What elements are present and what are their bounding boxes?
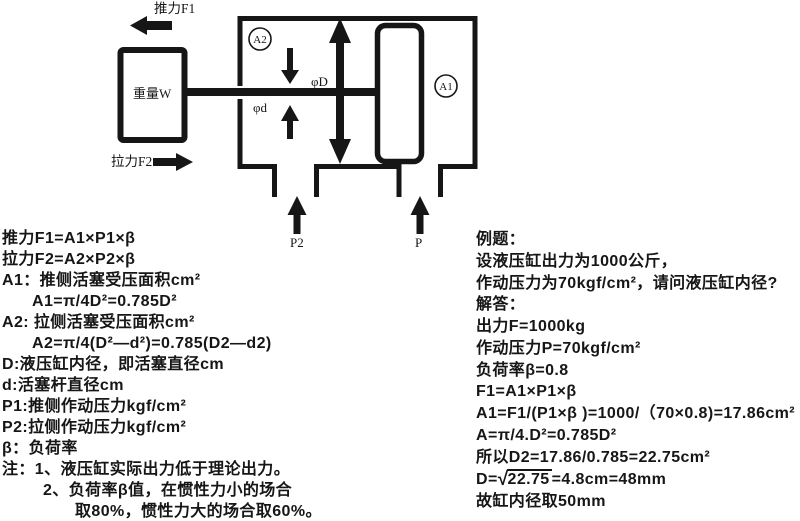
example-radical-line: D=√22.75=4.8cm=48mm <box>476 468 795 491</box>
port-p-label: P <box>415 235 422 250</box>
example-line: 出力F=1000kg <box>476 316 795 338</box>
note-line-1: 注：1、液压缸实际出力低于理论出力。 <box>2 459 322 480</box>
note-line-2: 2、负荷率β值，在惯性力小的场合 <box>2 480 322 501</box>
piston <box>378 26 422 162</box>
port-p-arrow-head <box>411 196 430 215</box>
area-a2-badge: A2 <box>249 28 271 50</box>
area-a2-label: A2 <box>253 34 266 46</box>
example-line: A1=F1/(P1×β )=1000/（70×0.8)=17.86cm² <box>476 403 795 425</box>
formula-line-a1-eq: A1=π/4D²=0.785D² <box>2 291 322 312</box>
square-root-icon: √ <box>498 469 509 491</box>
formula-line-d-rod-def: d:活塞杆直径cm <box>2 375 322 396</box>
formula-line-d-def: D:液压缸内径，即活塞直径cm <box>2 354 322 375</box>
hydraulic-cylinder-page: A2 A1 推力F1 重量W 拉力F2 φD φd P2 P 推力F1=A1×P… <box>0 0 800 521</box>
example-line: 负荷率β=0.8 <box>476 360 795 382</box>
example-line: 设液压缸出力为1000公斤， <box>476 251 795 273</box>
example-title: 例题： <box>476 229 795 251</box>
formula-line-p2-def: P2:拉侧作动压力kgf/cm² <box>2 417 322 438</box>
example-panel: 例题： 设液压缸出力为1000公斤， 作动压力为70kgf/cm²，请问液压缸内… <box>476 229 795 513</box>
formula-line-a2-def: A2: 拉侧活塞受压面积cm² <box>2 312 322 333</box>
bore-diameter-label: φD <box>311 74 328 89</box>
note-line-3: 取80%，惯性力大的场合取60%。 <box>2 501 322 521</box>
formula-line-push: 推力F1=A1×P1×β <box>2 228 322 249</box>
example-line: 作动压力为70kgf/cm²，请问液压缸内径? <box>476 273 795 295</box>
port-p2-arrow-head <box>288 196 307 215</box>
formula-line-pull: 拉力F2=A2×P2×β <box>2 249 322 270</box>
rod-diameter-label: φd <box>253 100 268 115</box>
example-answer-heading: 解答： <box>476 294 795 316</box>
push-force-arrow <box>130 16 172 35</box>
example-conclusion-line: 故缸内径取50mm <box>476 491 795 513</box>
weight-label: 重量W <box>133 86 172 101</box>
example-line: F1=A1×P1×β <box>476 381 795 403</box>
formula-line-a2-eq: A2=π/4(D²—d²)=0.785(D2—d2) <box>2 333 322 354</box>
bore-dimension-arrowhead-up <box>329 18 351 43</box>
radical-post: =4.8cm=48mm <box>552 471 667 488</box>
area-a1-label: A1 <box>439 81 452 93</box>
area-a1-badge: A1 <box>435 75 457 97</box>
radical-pre: D= <box>476 471 498 488</box>
example-line: 作动压力P=70kgf/cm² <box>476 338 795 360</box>
radical-number: 22.75 <box>507 469 552 488</box>
formula-line-p1-def: P1:推侧作动压力kgf/cm² <box>2 396 322 417</box>
push-force-label: 推力F1 <box>154 1 195 16</box>
bore-dimension-arrowhead-down <box>329 139 351 164</box>
example-line: A=π/4.D²=0.785D² <box>476 425 795 447</box>
formula-line-beta-def: β：负荷率 <box>2 438 322 459</box>
example-line: 所以D2=17.86/0.785=22.75cm² <box>476 447 795 469</box>
rod-diameter-down-head <box>281 70 299 84</box>
pull-force-label: 拉力F2 <box>111 154 152 169</box>
formula-panel: 推力F1=A1×P1×β 拉力F2=A2×P2×β A1：推侧活塞受压面积cm²… <box>2 228 322 521</box>
formula-line-a1-def: A1：推侧活塞受压面积cm² <box>2 270 322 291</box>
hydraulic-cylinder-diagram: A2 A1 推力F1 重量W 拉力F2 φD φd P2 P <box>0 0 800 260</box>
rod-diameter-up-head <box>281 105 299 121</box>
pull-force-arrow <box>153 153 193 171</box>
cylinder-body <box>238 16 478 197</box>
